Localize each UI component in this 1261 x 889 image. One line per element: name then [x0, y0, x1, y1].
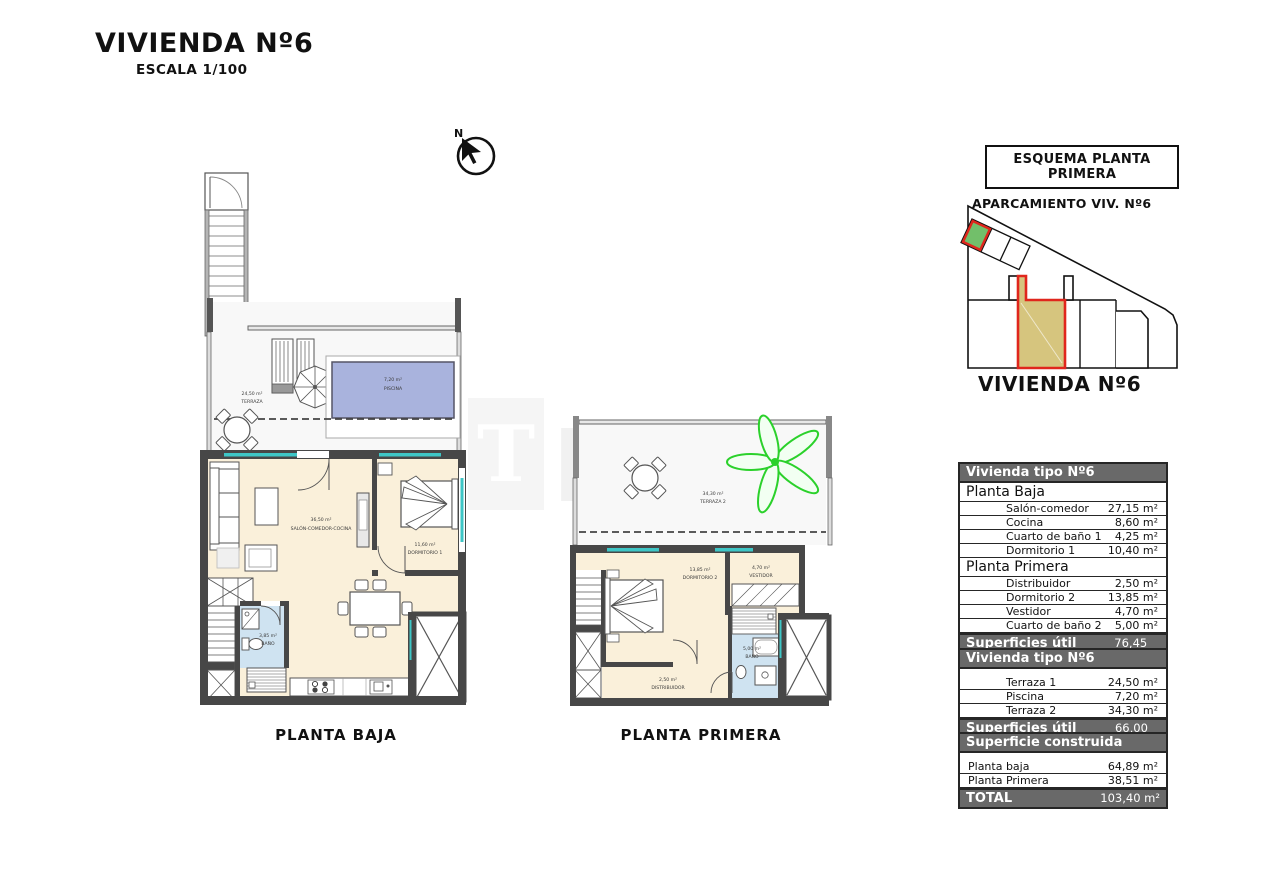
pool: 7,20 m² PISCINA — [326, 356, 460, 438]
table-row: Planta baja 64,89 m² — [960, 760, 1166, 774]
entry-opening — [297, 451, 329, 458]
vestidor-name-label: VESTIDOR — [749, 573, 773, 579]
wardrobe — [732, 584, 799, 606]
tv-unit — [357, 493, 369, 547]
vestidor-wall — [725, 553, 730, 615]
bano-1: 3,85 m² BAÑO — [240, 601, 289, 668]
row-label: Planta baja — [968, 760, 1029, 773]
table-superficie-construida: Superficie construida Planta baja 64,89 … — [958, 732, 1168, 809]
bath-column-wall — [728, 606, 732, 698]
table-header: Vivienda tipo Nº6 — [960, 650, 1166, 669]
terraza-2: 34,30 m² TERRAZA 2 — [573, 414, 832, 545]
terraza-1: 7,20 m² PISCINA 24,50 m² TERRAZA — [207, 298, 461, 452]
row-value: 27,15 m² — [1108, 502, 1158, 515]
window-teal-1 — [224, 453, 298, 457]
row-label: Cuarto de baño 2 — [1006, 619, 1102, 632]
table-row: Salón-comedor 27,15 m² — [960, 502, 1166, 516]
row-label: Cocina — [1006, 516, 1043, 529]
north-letter: N — [454, 127, 463, 140]
bedroom-partition-wall — [372, 459, 377, 550]
distribuidor-door-opening — [673, 662, 697, 667]
row-value: 10,40 m² — [1108, 544, 1158, 557]
armchair — [245, 545, 277, 571]
esquema-title-box: ESQUEMA PLANTA PRIMERA — [985, 145, 1179, 189]
terraza-name-label: TERRAZA — [240, 399, 263, 405]
bano2-name-label: BAÑO — [745, 653, 759, 660]
watermark-logo-letter: T — [477, 409, 535, 500]
row-label: Dormitorio 2 — [1006, 591, 1075, 604]
bano-2: 5,00 m² BAÑO — [732, 634, 779, 698]
scale-label: ESCALA 1/100 — [136, 62, 248, 78]
patio-void — [408, 612, 464, 700]
page-title: VIVIENDA Nº6 — [95, 28, 313, 59]
bano2-area-label: 5,00 m² — [743, 646, 761, 652]
table-header-label: Superficie construida — [966, 735, 1122, 750]
row-value: 8,60 m² — [1115, 516, 1158, 529]
table-row: Planta Primera 38,51 m² — [960, 774, 1166, 788]
row-label: Cuarto de baño 1 — [1006, 530, 1102, 543]
watermark-logo: T — [468, 398, 544, 510]
terraza2-area-label: 34,30 m² — [703, 491, 724, 497]
terraza-area-label: 24,50 m² — [242, 391, 263, 397]
row-value: 5,00 m² — [1115, 619, 1158, 632]
coffee-table — [255, 488, 278, 525]
laundry-louver — [732, 608, 776, 634]
row-value: 38,51 m² — [1108, 774, 1158, 787]
plan-sheet: VIVIENDA Nº6 ESCALA 1/100 T EKC N — [0, 0, 1261, 889]
toilet-icon — [736, 666, 746, 679]
row-value: 13,85 m² — [1108, 591, 1158, 604]
utility-mat — [247, 668, 286, 692]
table-header-label: Vivienda tipo Nº6 — [966, 465, 1095, 480]
table-row: Terraza 2 34,30 m² — [960, 704, 1166, 718]
esquema-vivienda-label: VIVIENDA Nº6 — [978, 372, 1141, 396]
pool-name-label: PISCINA — [384, 386, 403, 392]
table-row: Cuarto de baño 2 5,00 m² — [960, 619, 1166, 633]
row-label: Planta Primera — [968, 774, 1049, 787]
north-cursor-icon — [462, 138, 481, 164]
dormitorio2-area-label: 13,85 m² — [690, 567, 711, 573]
dormitorio2-name-label: DORMITORIO 2 — [683, 575, 718, 581]
bano-area-label: 3,85 m² — [259, 633, 277, 639]
distribuidor-name-label: DISTRIBUIDOR — [651, 685, 685, 691]
table-row: Dormitorio 1 10,40 m² — [960, 544, 1166, 558]
footer-label: TOTAL — [966, 791, 1012, 806]
table-row: Cuarto de baño 1 4,25 m² — [960, 530, 1166, 544]
dormitorio1-name-label: DORMITORIO 1 — [408, 550, 443, 556]
row-label: Dormitorio 1 — [1006, 544, 1075, 557]
bano-name-label: BAÑO — [261, 640, 275, 647]
dormitorio1-area-label: 11,60 m² — [415, 542, 436, 548]
table-row: Distribuidor 2,50 m² — [960, 577, 1166, 591]
row-label: Distribuidor — [1006, 577, 1070, 590]
table-row: Cocina 8,60 m² — [960, 516, 1166, 530]
planta-primera-caption: PLANTA PRIMERA — [616, 726, 786, 744]
floorplan-planta-primera: 34,30 m² TERRAZA 2 — [565, 410, 840, 710]
row-label: Terraza 2 — [1006, 704, 1056, 717]
row-label: Salón-comedor — [1006, 502, 1089, 515]
table-header: Superficie construida — [960, 734, 1166, 753]
window-teal-2 — [379, 453, 441, 457]
row-value: 7,20 m² — [1115, 690, 1158, 703]
hob-icon — [308, 680, 334, 694]
rug — [217, 548, 239, 568]
row-label: Vestidor — [1006, 605, 1051, 618]
table-row: Vestidor 4,70 m² — [960, 605, 1166, 619]
table-row: Terraza 1 24,50 m² — [960, 676, 1166, 690]
site-plan — [958, 203, 1202, 381]
planta-baja-caption: PLANTA BAJA — [256, 726, 416, 744]
pool-area-label: 7,20 m² — [384, 377, 402, 383]
salon-area-label: 36,50 m² — [311, 517, 332, 523]
table-header: Vivienda tipo Nº6 — [960, 464, 1166, 483]
footer-value: 103,40 m² — [1100, 791, 1160, 805]
stair-wall — [235, 606, 240, 700]
row-value: 2,50 m² — [1115, 577, 1158, 590]
vestidor-area-label: 4,70 m² — [752, 565, 770, 571]
terraza2-name-label: TERRAZA 2 — [699, 499, 726, 505]
row-value: 4,70 m² — [1115, 605, 1158, 618]
window-teal-4 — [715, 548, 753, 552]
row-value: 64,89 m² — [1108, 760, 1158, 773]
row-label: Terraza 1 — [1006, 676, 1056, 689]
kitchen-counter — [290, 678, 412, 696]
table-superficies-interior: Vivienda tipo Nº6 Planta Baja Salón-come… — [958, 462, 1168, 669]
table-row: Dormitorio 2 13,85 m² — [960, 591, 1166, 605]
patio-void-2 — [778, 613, 829, 698]
floorplan-planta-baja: 7,20 m² PISCINA 24,50 m² TERRAZA — [198, 168, 468, 713]
salon-name-label: SALÓN-COMEDOR-COCINA — [291, 525, 353, 532]
section-title-planta-primera: Planta Primera — [960, 558, 1166, 577]
table-row: Piscina 7,20 m² — [960, 690, 1166, 704]
row-label: Piscina — [1006, 690, 1044, 703]
distribuidor-area-label: 2,50 m² — [659, 677, 677, 683]
table-header-label: Vivienda tipo Nº6 — [966, 651, 1095, 666]
window-teal-3 — [607, 548, 659, 552]
sofa — [210, 462, 239, 550]
section-title-planta-baja: Planta Baja — [960, 483, 1166, 502]
row-value: 34,30 m² — [1108, 704, 1158, 717]
row-value: 24,50 m² — [1108, 676, 1158, 689]
bed-dormitorio-2 — [605, 570, 663, 642]
table-footer-total: TOTAL 103,40 m² — [960, 788, 1166, 807]
row-value: 4,25 m² — [1115, 530, 1158, 543]
